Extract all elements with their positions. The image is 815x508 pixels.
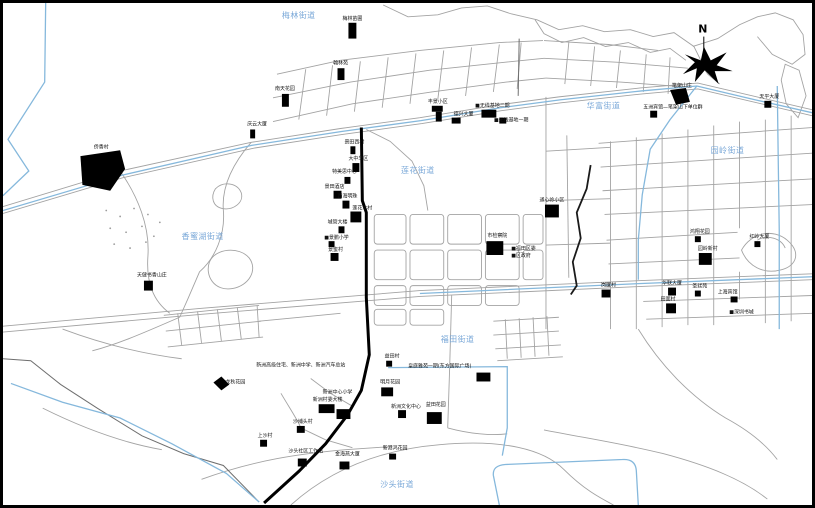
landmark-label: 金海燕大厦 (335, 451, 360, 458)
landmark-label: 梅林苗圃 (343, 15, 363, 22)
district-label: 梅林街道 (282, 10, 316, 20)
building-footprint (436, 112, 442, 122)
building-footprint (699, 253, 712, 265)
building-footprint (340, 462, 350, 470)
district-label: 沙头街道 (380, 479, 414, 489)
compass-glyph (683, 46, 733, 84)
landmark-label: 通心岭小区 (540, 197, 565, 204)
building-footprint (764, 101, 771, 108)
landmark-label: 新洲高级住宅、新洲中学、新洲汽车总站 (256, 362, 345, 369)
building-footprint (486, 241, 503, 255)
orchard-dots (105, 208, 160, 249)
district-label: 福田街道 (441, 334, 475, 344)
district-labels: 梅林街道华富街道园岭街道莲花街道香蜜湖街道福田街道沙头街道 (182, 10, 745, 489)
landmark-label: ■无线基地一期 (494, 117, 528, 124)
building-footprint (282, 94, 289, 107)
landmark-label: 笔架山庄 (672, 82, 692, 89)
building-footprint (350, 212, 361, 223)
landmark-label: 市检察院 (487, 232, 507, 239)
road-network (3, 5, 812, 505)
landmark-label: ■景鹏小学 (324, 234, 349, 241)
landmark-label: ■深圳书城 (729, 308, 754, 315)
building-footprint (386, 361, 392, 367)
landmark-label: 新洲村委大楼 (313, 396, 343, 403)
building-footprint (339, 226, 345, 233)
building-footprint (389, 454, 396, 460)
landmark-label: 鸿翔花园 (690, 228, 710, 235)
landmark-label: 上海宾馆 (718, 289, 738, 296)
landmark-label: 新洲文化中心 (391, 403, 421, 410)
landmark-label: 德兴大厦 (454, 111, 474, 118)
landmark-label: 上沙村 (258, 432, 273, 439)
landmark-label: 庆云大厦 (247, 121, 267, 128)
landmark-label: 益田村 (385, 353, 400, 360)
landmark-label: 天平大厦 (759, 93, 779, 100)
landmark-label: 圣廷苑 (692, 283, 707, 290)
building-footprint (297, 426, 305, 433)
building-footprint (319, 404, 335, 413)
building-footprint (350, 146, 355, 154)
building-footprint (545, 205, 559, 218)
map-canvas: N 梅林苗圃侨香村翰林苑南天花园庆云大厦笔架山庄五洲宾馆—笔架山下单位群天平大厦… (3, 3, 812, 505)
landmark-label: 五洲宾馆—笔架山下单位群 (643, 104, 702, 111)
building-footprint (338, 68, 345, 80)
landmark-label: 皇庭雅苑一期(东方国际广场) (408, 363, 471, 370)
landmark-label: ■无线基地二期 (475, 102, 509, 109)
building-footprint (481, 110, 496, 118)
building-footprint (602, 290, 611, 298)
building-footprint (754, 241, 760, 247)
building-footprint (731, 296, 738, 302)
building-footprint (476, 373, 490, 382)
landmark-label: 益田花园 (426, 401, 446, 408)
building-footprint (432, 106, 443, 112)
landmark-label: 龙秋花园 (225, 378, 245, 385)
building-footprint (250, 129, 255, 138)
building-footprint (427, 412, 442, 424)
landmark-label: 景田西村 (344, 138, 364, 145)
landmark-label: 丰景小区 (428, 98, 448, 105)
building-footprint (666, 303, 676, 313)
landmark-label: 沙头社区工作站 (288, 448, 323, 455)
landmark-label: 华联大厦 (662, 280, 682, 287)
landmark-label: 侨香村 (94, 143, 109, 150)
map-surface: N 梅林苗圃侨香村翰林苑南天花园庆云大厦笔架山庄五洲宾馆—笔架山下单位群天平大厦… (3, 3, 812, 505)
landmark-label: 西海明珠 (338, 193, 358, 200)
building-footprint (452, 118, 461, 124)
building-footprint (337, 409, 351, 419)
building-footprint (695, 291, 701, 297)
building-footprint (695, 236, 701, 242)
river-and-blue-roads (3, 3, 812, 505)
landmark-label: 新洲中心小学 (323, 388, 353, 395)
landmark-label: 翰林苑 (333, 59, 348, 66)
landmark-label: ■福田区委 (511, 245, 536, 252)
building-footprint (650, 111, 657, 118)
landmark-label: 特美思中心 (332, 168, 357, 175)
north-label: N (698, 23, 707, 36)
building-footprint (298, 459, 307, 467)
building-footprint (670, 88, 690, 105)
district-label: 莲花街道 (401, 165, 435, 175)
building-footprint (331, 253, 339, 261)
landmark-label: 新港鸿花园 (383, 445, 408, 452)
landmark-label: 天健书香山庄 (137, 272, 167, 279)
building-footprint (342, 201, 349, 209)
building-footprint (348, 23, 356, 39)
building-footprint (344, 177, 350, 184)
landmark-label: 岗厦村 (601, 282, 616, 289)
landmark-label: 田面村 (661, 295, 676, 302)
landmark-label: ■区政府 (511, 252, 531, 259)
district-label: 华富街道 (587, 101, 621, 111)
landmark-label: 南天花园 (275, 85, 295, 92)
expressway-and-river-black (264, 128, 591, 504)
landmark-label: 大中华区 (348, 155, 368, 162)
landmark-label: 园岭新村 (698, 245, 718, 252)
district-label: 园岭街道 (711, 145, 745, 155)
landmark-label: 景蜜村 (328, 246, 343, 253)
building-footprint (668, 288, 676, 296)
building-footprint (260, 440, 267, 447)
building-footprint (80, 150, 125, 191)
landmark-label: 沙埔头村 (293, 418, 313, 425)
north-arrow: N (683, 23, 733, 84)
landmark-label: 红岭大厦 (749, 233, 769, 240)
building-footprint (381, 387, 393, 396)
landmark-label: 明月花园 (380, 378, 400, 385)
district-label: 香蜜湖街道 (182, 231, 224, 241)
landmark-label: 景田酒店 (325, 183, 345, 190)
building-footprint (144, 281, 153, 291)
building-footprint (398, 410, 406, 418)
landmark-label: 城管大楼 (328, 218, 348, 225)
city-blocks (374, 214, 543, 325)
map-frame: N 梅林苗圃侨香村翰林苑南天花园庆云大厦笔架山庄五洲宾馆—笔架山下单位群天平大厦… (0, 0, 815, 508)
landmark-label: 莲花北村 (352, 205, 372, 212)
